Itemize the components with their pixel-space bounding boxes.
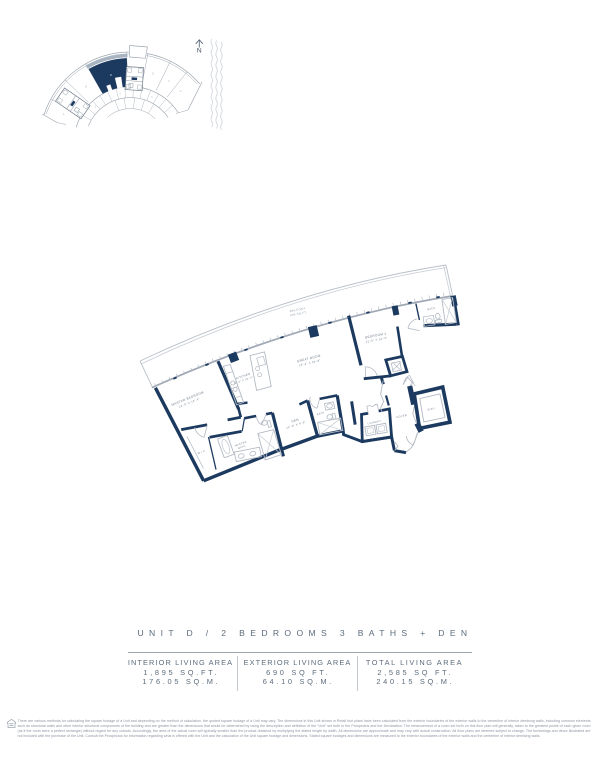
svg-text:A: A bbox=[63, 113, 65, 116]
svg-text:BATH: BATH bbox=[317, 411, 325, 416]
svg-text:E: E bbox=[152, 73, 154, 76]
svg-text:1: 1 bbox=[95, 106, 97, 109]
svg-text:ELEV.: ELEV. bbox=[427, 407, 436, 412]
svg-text:B: B bbox=[85, 85, 87, 88]
svg-text:D: D bbox=[110, 73, 112, 77]
svg-text:N: N bbox=[197, 48, 202, 55]
svg-text:BATH: BATH bbox=[427, 307, 435, 311]
svg-text:3: 3 bbox=[151, 96, 153, 99]
svg-text:W.I.C.: W.I.C. bbox=[197, 449, 206, 455]
svg-text:F: F bbox=[168, 80, 170, 83]
svg-text:FOYER: FOYER bbox=[396, 413, 407, 419]
svg-text:G: G bbox=[180, 90, 182, 93]
svg-text:2: 2 bbox=[119, 93, 121, 96]
